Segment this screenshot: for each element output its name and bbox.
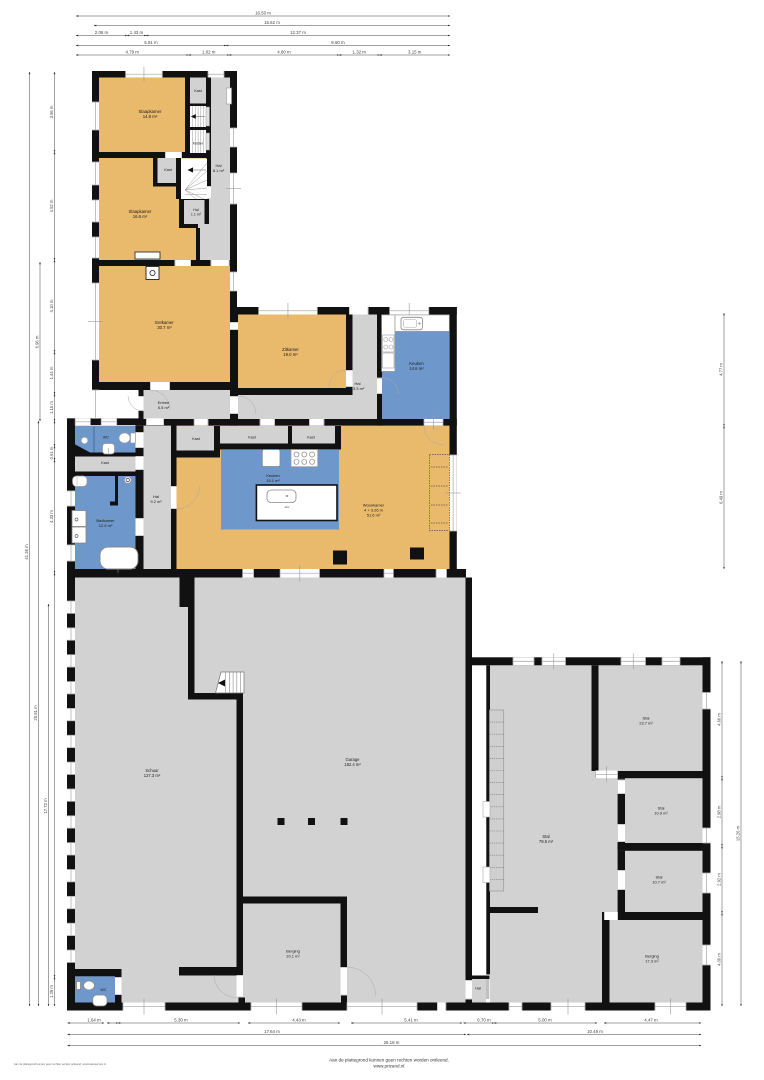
svg-text:2.92 m: 2.92 m — [717, 873, 722, 886]
svg-text:4.52 m: 4.52 m — [49, 199, 54, 212]
svg-text:5.00 m: 5.00 m — [538, 1018, 552, 1023]
svg-text:17.64 m: 17.64 m — [264, 1029, 280, 1034]
svg-text:Hal: Hal — [475, 987, 481, 991]
svg-text:6.49 m: 6.49 m — [719, 491, 724, 504]
svg-text:1.43 m: 1.43 m — [130, 30, 144, 35]
svg-text:4.79 m: 4.79 m — [126, 50, 140, 55]
svg-text:Eetkamer30.7 m²: Eetkamer30.7 m² — [155, 320, 174, 330]
svg-text:2.06 m: 2.06 m — [95, 30, 109, 35]
svg-text:15.62 m: 15.62 m — [264, 20, 280, 25]
svg-text:0.61 m: 0.61 m — [49, 446, 54, 459]
svg-text:Kast: Kast — [194, 89, 203, 93]
svg-text:4.80 m: 4.80 m — [277, 50, 291, 55]
svg-text:Keuken14.6 m²: Keuken14.6 m² — [409, 361, 424, 371]
svg-text:4.00 m: 4.00 m — [717, 953, 722, 966]
svg-text:1.15 m: 1.15 m — [49, 401, 54, 414]
svg-text:15.26 m: 15.26 m — [736, 825, 741, 841]
svg-text:Berging17.3 m²: Berging17.3 m² — [645, 954, 659, 964]
svg-text:Kast: Kast — [248, 436, 257, 440]
svg-text:www.prizand.nl: www.prizand.nl — [374, 1064, 405, 1069]
svg-text:4.66 m: 4.66 m — [717, 713, 722, 726]
svg-text:Zitkamer19.0 m²: Zitkamer19.0 m² — [282, 347, 299, 357]
svg-text:16.50 m: 16.50 m — [255, 11, 271, 16]
svg-text:6.70 m: 6.70 m — [477, 1018, 491, 1023]
svg-text:26.18 m: 26.18 m — [384, 1040, 400, 1045]
svg-text:Kast: Kast — [101, 461, 110, 465]
svg-text:5.91 m: 5.91 m — [144, 40, 158, 45]
svg-text:1.32 m: 1.32 m — [353, 50, 367, 55]
svg-text:Aan de plattegrond kunnen geen: Aan de plattegrond kunnen geen rechten w… — [329, 1058, 449, 1063]
svg-text:Aan de plattegrond kunnen geen: Aan de plattegrond kunnen geen rechten w… — [14, 1062, 106, 1066]
svg-text:Kast: Kast — [192, 437, 201, 441]
svg-text:Kelder: Kelder — [193, 142, 204, 146]
svg-text:5.41 m: 5.41 m — [404, 1018, 418, 1023]
svg-text:Entree5.5 m²: Entree5.5 m² — [158, 400, 171, 410]
svg-text:Schuur127.3 m²: Schuur127.3 m² — [144, 768, 161, 778]
svg-text:5.30 m: 5.30 m — [174, 1018, 188, 1023]
svg-text:3.56 m: 3.56 m — [49, 105, 54, 118]
svg-text:1.02 m: 1.02 m — [202, 50, 216, 55]
svg-text:17.72 m: 17.72 m — [43, 798, 48, 814]
svg-text:Kast: Kast — [307, 436, 316, 440]
svg-text:25.91 m: 25.91 m — [33, 705, 38, 721]
svg-text:4.77 m: 4.77 m — [719, 363, 724, 376]
svg-text:Berging20.1 m²: Berging20.1 m² — [286, 949, 300, 959]
svg-text:afw: afw — [285, 505, 291, 509]
svg-text:6.96 m: 6.96 m — [35, 335, 40, 348]
svg-text:2.98 m: 2.98 m — [717, 805, 722, 818]
svg-text:4.47 m: 4.47 m — [644, 1018, 658, 1023]
svg-text:WC: WC — [103, 436, 110, 440]
svg-text:4.43 m: 4.43 m — [292, 1018, 306, 1023]
svg-text:3.15 m: 3.15 m — [408, 50, 422, 55]
svg-text:12.37 m: 12.37 m — [290, 30, 306, 35]
svg-text:10.49 m: 10.49 m — [587, 1029, 603, 1034]
svg-text:Garage182.4 m²: Garage182.4 m² — [344, 757, 361, 767]
svg-text:1.29 m: 1.29 m — [49, 985, 54, 998]
svg-text:9.60 m: 9.60 m — [331, 40, 345, 45]
svg-text:Keuken16.1 m²: Keuken16.1 m² — [266, 473, 280, 483]
svg-text:4.33 m: 4.33 m — [49, 510, 54, 523]
svg-text:WC: WC — [100, 988, 107, 992]
svg-text:1.64 m: 1.64 m — [87, 1018, 101, 1023]
svg-text:Kast: Kast — [164, 168, 173, 172]
svg-text:41.36 m: 41.36 m — [24, 544, 29, 560]
svg-text:1.44 m: 1.44 m — [49, 366, 54, 379]
svg-text:4.10 m: 4.10 m — [49, 299, 54, 312]
